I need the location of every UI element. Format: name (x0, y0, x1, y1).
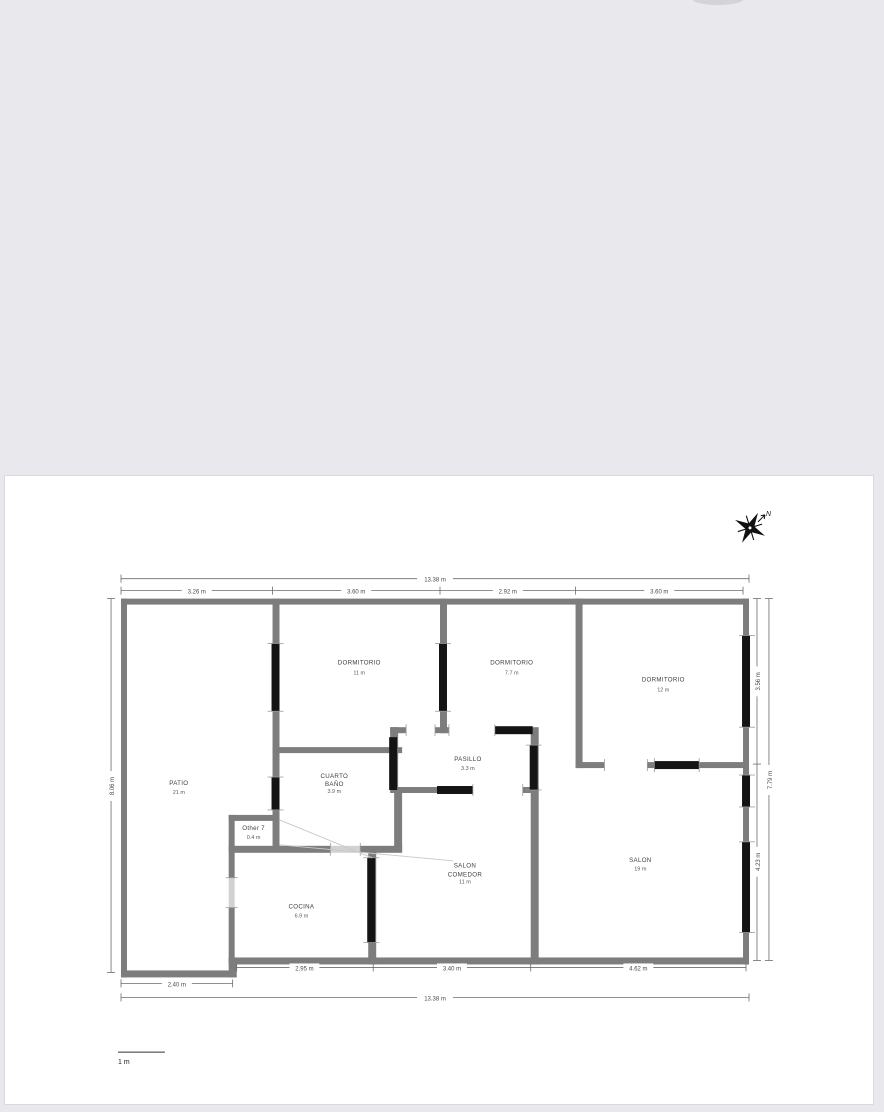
dim-bottom-patio: 2.40 m (168, 982, 186, 988)
wall (360, 846, 402, 853)
window-bar (272, 777, 280, 810)
dim-top-seg4: 3.60 m (650, 590, 668, 596)
room-area: 3.9 m (327, 789, 341, 795)
window-bar (389, 737, 397, 790)
room-name-line1: SALON (454, 863, 476, 870)
scale-bar-label: 1 m (118, 1059, 130, 1066)
wall (121, 599, 749, 605)
wall (394, 787, 437, 793)
dim-top-seg3: 2.92 m (499, 590, 517, 596)
room-name: PATIO (169, 780, 188, 787)
room-name: SALON (629, 857, 651, 864)
window-bar (742, 775, 750, 807)
window-bar (272, 643, 280, 711)
room-area: 12 m (657, 687, 670, 693)
document-viewer: 13.38 m 3.26 m 3.60 m 2.92 m 3.60 m (0, 0, 884, 1112)
room-area: 7.7 m (505, 670, 519, 676)
room-label-salon-comedor: SALON COMEDOR 11 m (448, 863, 483, 886)
room-name: COCINA (289, 904, 315, 911)
scroll-indicator (693, 0, 743, 5)
wall (273, 747, 403, 753)
window-bar (742, 635, 750, 727)
room-label-other-7: Other 7 0.4 m (242, 825, 265, 841)
dim-right-seg2: 4.23 m (756, 853, 762, 871)
room-area: 19 m (634, 867, 647, 873)
dim-top-total: 13.38 m (424, 578, 446, 584)
wall (121, 970, 237, 977)
wall (229, 846, 331, 853)
room-name-line2: BAÑO (325, 781, 344, 788)
room-name: Other 7 (242, 825, 265, 832)
wall (229, 815, 279, 821)
dim-left-total: 8.06 m (110, 777, 116, 795)
wall (229, 908, 235, 965)
wall (394, 787, 402, 852)
dim-bottom-seg3: 4.62 m (629, 966, 647, 972)
room-label-pasillo: PASILLO 3.3 m (454, 756, 481, 772)
room-label-cocina: COCINA 6.9 m (289, 904, 315, 920)
window-bar (439, 643, 447, 711)
room-label-salon: SALON 19 m (629, 857, 651, 873)
walls (121, 599, 749, 978)
window-bar (367, 858, 375, 943)
room-label-cuarto-bano: CUARTO BAÑO 3.9 m (321, 773, 349, 795)
room-area: 11 m (459, 880, 471, 886)
wall (576, 599, 583, 768)
room-area: 0.4 m (247, 835, 261, 841)
dim-right-total: 7.79 m (768, 771, 774, 789)
room-area: 3.3 m (461, 766, 475, 772)
dim-bottom-seg2: 3.40 m (443, 966, 461, 972)
room-label-dormitorio-1: DORMITORIO 11 m (338, 659, 381, 676)
compass-north-label: N (766, 511, 772, 518)
dim-right-seg1: 3.56 m (756, 672, 762, 690)
room-area: 6.9 m (295, 914, 309, 920)
room-area: 21 m (173, 790, 186, 796)
room-name-line2: COMEDOR (448, 872, 483, 879)
window-bar (654, 761, 699, 769)
room-name: DORMITORIO (338, 659, 381, 666)
compass-rose-icon: N (727, 505, 773, 551)
scale-bar: 1 m (118, 1052, 165, 1066)
room-name: DORMITORIO (642, 676, 685, 683)
wall (229, 957, 749, 964)
room-name-line1: CUARTO (321, 773, 349, 780)
dim-top-seg2: 3.60 m (347, 590, 365, 596)
wall (435, 727, 449, 733)
floorplan-page: 13.38 m 3.26 m 3.60 m 2.92 m 3.60 m (4, 475, 874, 1105)
wall (273, 599, 280, 848)
dim-bottom-total: 13.38 m (424, 996, 446, 1002)
window-bar (437, 786, 473, 794)
room-label-dormitorio-3: DORMITORIO 12 m (642, 676, 685, 693)
room-name: PASILLO (454, 756, 481, 763)
window-bar (530, 745, 538, 790)
dim-top-seg1: 3.26 m (188, 590, 206, 596)
window-bar (742, 842, 750, 933)
room-area: 11 m (353, 670, 365, 676)
floorplan-svg: 13.38 m 3.26 m 3.60 m 2.92 m 3.60 m (5, 476, 873, 1104)
window-bar (495, 726, 533, 734)
dim-bottom-seg1: 2.95 m (295, 966, 313, 972)
room-label-patio: PATIO 21 m (169, 780, 188, 796)
wall (576, 762, 605, 768)
room-name: DORMITORIO (490, 659, 533, 666)
wall (390, 727, 406, 733)
room-label-dormitorio-2: DORMITORIO 7.7 m (490, 659, 533, 676)
wall (121, 599, 127, 978)
